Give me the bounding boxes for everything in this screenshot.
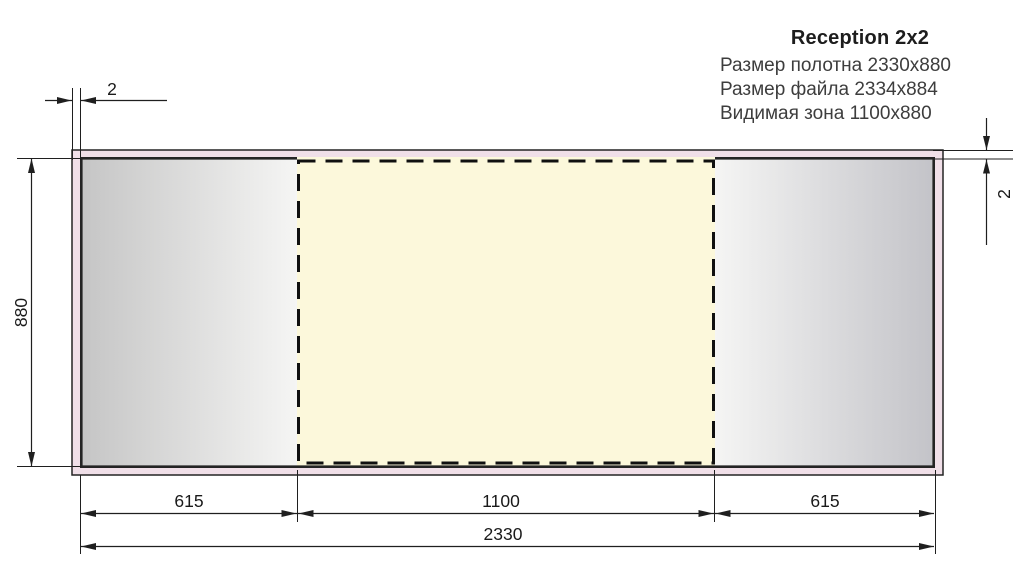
dim-label-bleed-left: 2 [107, 79, 117, 99]
dimension-canvas-height: 880 [11, 159, 81, 467]
dim-label-right-panel-width: 615 [810, 491, 839, 511]
dimension-canvas-width: 2330 [81, 524, 934, 550]
dim-label-left-panel-width: 615 [174, 491, 203, 511]
dim-label-canvas-width: 2330 [484, 524, 523, 544]
dimension-bleed-top: 2 [933, 118, 1014, 245]
arrowhead [983, 136, 990, 150]
dim-label-bleed-top: 2 [994, 189, 1014, 199]
arrowhead [81, 510, 96, 517]
banner-panel [72, 150, 943, 475]
arrowhead [81, 543, 96, 550]
arrowhead [699, 510, 714, 517]
dim-label-visible-zone-width: 1100 [482, 491, 520, 511]
arrowhead [983, 160, 990, 174]
arrowhead [716, 510, 731, 517]
arrowhead [28, 159, 35, 174]
arrowhead [919, 543, 934, 550]
dimension-drawing: 2 2 880 [0, 0, 1026, 586]
right-panel [715, 157, 935, 468]
visible-zone [297, 157, 715, 468]
arrowhead [282, 510, 297, 517]
dimension-bleed-left: 2 [45, 79, 167, 160]
dim-label-canvas-height: 880 [11, 298, 31, 327]
left-panel [80, 157, 297, 468]
arrowhead [299, 510, 314, 517]
arrowhead [919, 510, 934, 517]
arrowhead [81, 97, 96, 104]
arrowhead [57, 97, 72, 104]
drawing-canvas: Reception 2x2 Размер полотна 2330x880 Ра… [0, 0, 1026, 586]
arrowhead [28, 452, 35, 467]
